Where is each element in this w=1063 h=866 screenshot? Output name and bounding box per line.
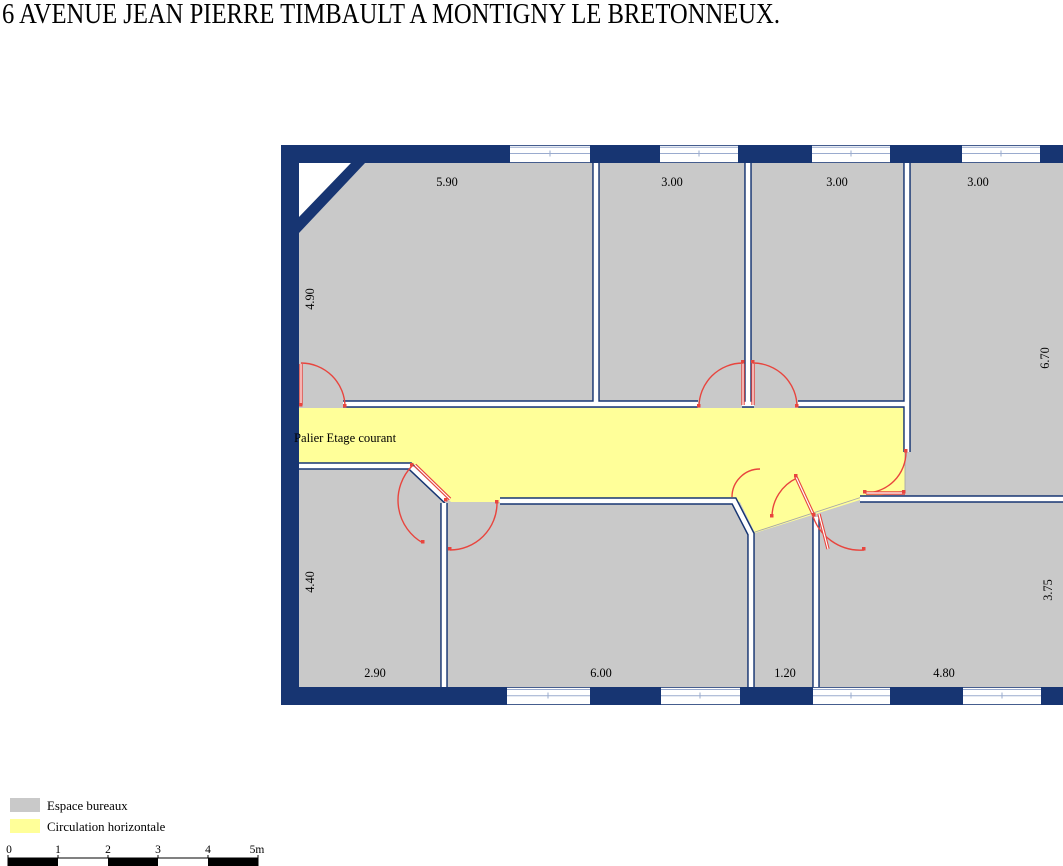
legend-label-offices: Espace bureaux bbox=[47, 799, 128, 813]
page-title: 6 AVENUE JEAN PIERRE TIMBAULT A MONTIGNY… bbox=[2, 0, 780, 30]
scale-bar: 0 1 2 3 4 5m bbox=[6, 844, 264, 866]
dim-bottom-3: 1.20 bbox=[774, 666, 796, 680]
page: 6 AVENUE JEAN PIERRE TIMBAULT A MONTIGNY… bbox=[0, 0, 1063, 866]
dim-bottom-1: 2.90 bbox=[364, 666, 386, 680]
dim-left-1: 4.90 bbox=[303, 288, 317, 310]
window bbox=[812, 146, 890, 162]
scale-label-4: 4 bbox=[205, 844, 211, 856]
window bbox=[510, 146, 590, 162]
window bbox=[813, 688, 890, 704]
dim-top-3: 3.00 bbox=[826, 175, 848, 189]
dim-bottom-2: 6.00 bbox=[590, 666, 612, 680]
dim-right-1: 6.70 bbox=[1038, 347, 1052, 369]
scale-label-0: 0 bbox=[6, 844, 12, 856]
window bbox=[661, 688, 740, 704]
dim-top-2: 3.00 bbox=[661, 175, 683, 189]
dim-top-1: 5.90 bbox=[436, 175, 458, 189]
legend-swatch-circulation bbox=[10, 819, 40, 833]
dim-right-2: 3.75 bbox=[1041, 579, 1055, 601]
outer-wall-left bbox=[281, 145, 299, 705]
scale-label-2: 2 bbox=[105, 844, 111, 856]
scale-label-3: 3 bbox=[155, 844, 161, 856]
window bbox=[660, 146, 738, 162]
legend-label-circulation: Circulation horizontale bbox=[47, 820, 166, 834]
window bbox=[962, 146, 1040, 162]
legend-swatch-offices bbox=[10, 798, 40, 812]
floor-plan-canvas: 6 AVENUE JEAN PIERRE TIMBAULT A MONTIGNY… bbox=[0, 0, 1063, 866]
window bbox=[963, 688, 1041, 704]
scale-label-1: 1 bbox=[55, 844, 61, 856]
dim-bottom-4: 4.80 bbox=[933, 666, 955, 680]
corridor-label: Palier Etage courant bbox=[294, 431, 397, 445]
legend: Espace bureaux Circulation horizontale bbox=[10, 798, 166, 834]
window bbox=[507, 688, 590, 704]
dim-top-4: 3.00 bbox=[967, 175, 989, 189]
dim-left-2: 4.40 bbox=[303, 571, 317, 593]
scale-label-5m: 5m bbox=[250, 844, 265, 856]
